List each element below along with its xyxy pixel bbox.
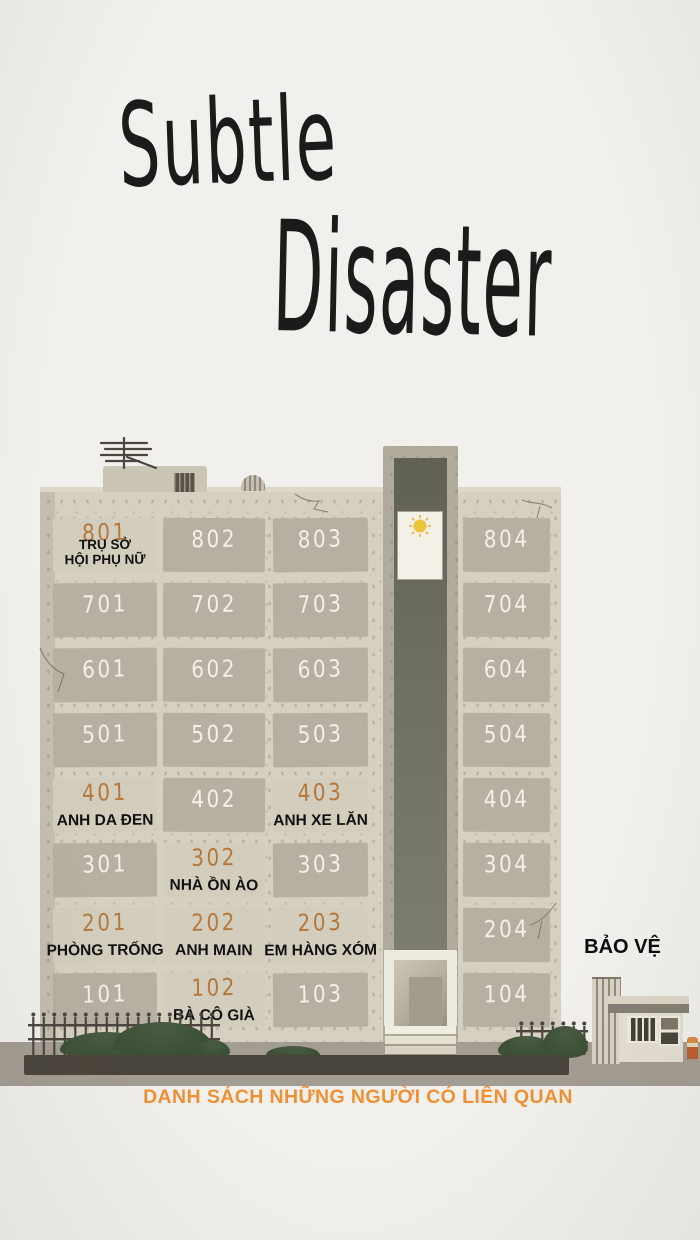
room-label-line: ANH MAIN (175, 942, 253, 959)
room-number: 503 (272, 709, 368, 750)
elevator-tower (383, 446, 458, 1050)
room-number: 201 (53, 904, 158, 938)
room-801: 801TRỤ SỞHỘI PHỤ NỮ (53, 518, 157, 573)
room-label-line: TRỤ SỞ (64, 537, 145, 553)
room-number: 604 (463, 644, 550, 683)
room-number: 701 (52, 578, 157, 619)
room-label: NHÀ ỒN ÀO (170, 877, 259, 895)
room-label: ANH MAIN (175, 942, 253, 959)
room-number: 101 (52, 968, 157, 1009)
guard-pane-window (659, 1016, 680, 1046)
room-number: 602 (163, 644, 265, 684)
room-number: 404 (463, 774, 550, 813)
room-number: 502 (163, 709, 265, 749)
room-504: 504 (463, 713, 550, 768)
guard-house-roof (608, 996, 689, 1004)
room-204: 204 (463, 908, 550, 963)
room-501: 501 (53, 713, 157, 768)
room-number: 803 (272, 514, 368, 555)
room-number: 603 (272, 644, 368, 685)
room-number: 104 (463, 969, 550, 1008)
room-103: 103 (273, 973, 368, 1028)
room-label-line: EM HÀNG XÓM (264, 942, 377, 960)
room-404: 404 (463, 778, 550, 833)
room-502: 502 (163, 713, 265, 768)
room-number: 204 (463, 904, 550, 943)
entrance-steps (385, 1026, 456, 1056)
room-number: 203 (273, 904, 369, 938)
room-label-line: ANH DA ĐEN (57, 812, 154, 830)
room-704: 704 (463, 583, 550, 638)
room-203: 203EM HÀNG XÓM (273, 908, 368, 963)
room-label-line: NHÀ ỒN ÀO (170, 877, 259, 895)
room-603: 603 (273, 648, 368, 703)
room-601: 601 (53, 648, 157, 703)
room-number: 302 (163, 840, 265, 873)
room-703: 703 (273, 583, 368, 638)
room-number: 804 (463, 514, 550, 553)
room-503: 503 (273, 713, 368, 768)
room-802: 802 (163, 518, 265, 573)
room-302: 302NHÀ ỒN ÀO (163, 843, 265, 898)
room-number: 704 (463, 579, 550, 618)
room-number: 802 (163, 514, 265, 554)
room-number: 703 (272, 579, 368, 620)
room-number: 303 (272, 839, 368, 880)
room-804: 804 (463, 518, 550, 573)
room-702: 702 (163, 583, 265, 638)
entrance-recess (394, 960, 447, 1026)
room-label: TRỤ SỞHỘI PHỤ NỮ (64, 537, 145, 568)
room-number: 702 (163, 579, 265, 619)
room-701: 701 (53, 583, 157, 638)
room-label-line: ANH XE LĂN (273, 812, 368, 830)
comic-page: Subtle Disaster 801TRỤ SỞHỘI PHỤ NỮ80280… (0, 0, 700, 1240)
room-number: 504 (463, 709, 550, 748)
room-number: 304 (463, 839, 550, 878)
room-label: PHÒNG TRỐNG (46, 942, 163, 960)
room-number: 102 (163, 970, 265, 1003)
room-301: 301 (53, 843, 157, 898)
guard-label: BẢO VỆ (570, 936, 675, 959)
room-label: EM HÀNG XÓM (264, 942, 377, 960)
room-803: 803 (273, 518, 368, 573)
room-303: 303 (273, 843, 368, 898)
curb (24, 1055, 569, 1075)
room-304: 304 (463, 843, 550, 898)
caption: DANH SÁCH NHỮNG NGƯỜI CÓ LIÊN QUAN (8, 1086, 700, 1109)
room-202: 202ANH MAIN (163, 908, 265, 963)
room-number: 202 (163, 905, 265, 938)
entrance-door (384, 950, 457, 1026)
room-602: 602 (163, 648, 265, 703)
room-number: 301 (52, 838, 157, 879)
room-402: 402 (163, 778, 265, 833)
tower-window (398, 512, 442, 579)
room-number: 601 (52, 643, 157, 684)
room-number: 401 (53, 774, 158, 808)
room-number: 402 (163, 774, 265, 814)
bollard (687, 1037, 698, 1059)
room-label: ANH XE LĂN (273, 812, 368, 830)
room-401: 401ANH DA ĐEN (53, 778, 157, 833)
room-number: 403 (273, 774, 369, 808)
entrance-core (409, 977, 442, 1026)
sun-icon (398, 512, 442, 546)
room-label-line: HỘI PHỤ NỮ (65, 552, 146, 568)
room-label: ANH DA ĐEN (57, 812, 154, 830)
room-number: 103 (272, 969, 368, 1010)
room-604: 604 (463, 648, 550, 703)
room-201: 201PHÒNG TRỐNG (53, 908, 157, 963)
guard-barred-window (627, 1016, 658, 1043)
room-403: 403ANH XE LĂN (273, 778, 368, 833)
guard-house-fascia (608, 1004, 689, 1013)
room-label-line: PHÒNG TRỐNG (46, 942, 163, 960)
gate-pillar (592, 977, 621, 1064)
room-number: 501 (52, 708, 157, 749)
